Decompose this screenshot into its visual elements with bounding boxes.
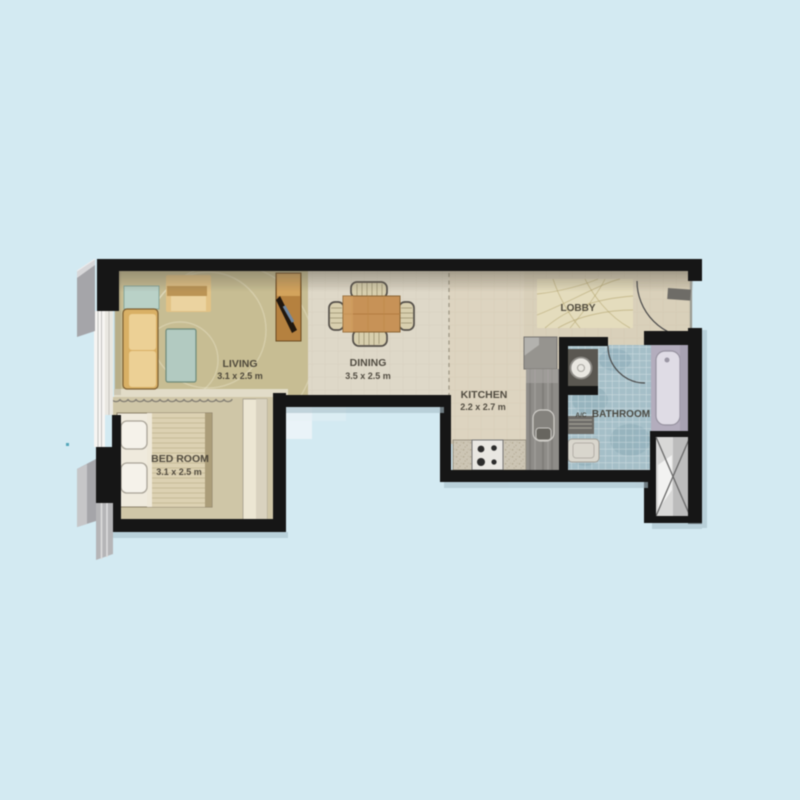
svg-text:3.1 x 2.5 m: 3.1 x 2.5 m	[156, 467, 202, 477]
svg-text:A/C: A/C	[575, 412, 587, 419]
svg-text:DINING: DINING	[350, 357, 387, 369]
svg-text:3.1 x 2.5 m: 3.1 x 2.5 m	[217, 371, 263, 381]
svg-text:KITCHEN: KITCHEN	[461, 389, 508, 401]
svg-text:BED ROOM: BED ROOM	[151, 453, 209, 465]
svg-text:BATHROOM: BATHROOM	[592, 409, 650, 420]
svg-text:LOBBY: LOBBY	[561, 303, 596, 314]
svg-text:2.2 x 2.7 m: 2.2 x 2.7 m	[460, 402, 506, 412]
svg-text:LIVING: LIVING	[222, 358, 257, 370]
svg-text:3.5 x 2.5 m: 3.5 x 2.5 m	[345, 371, 391, 381]
